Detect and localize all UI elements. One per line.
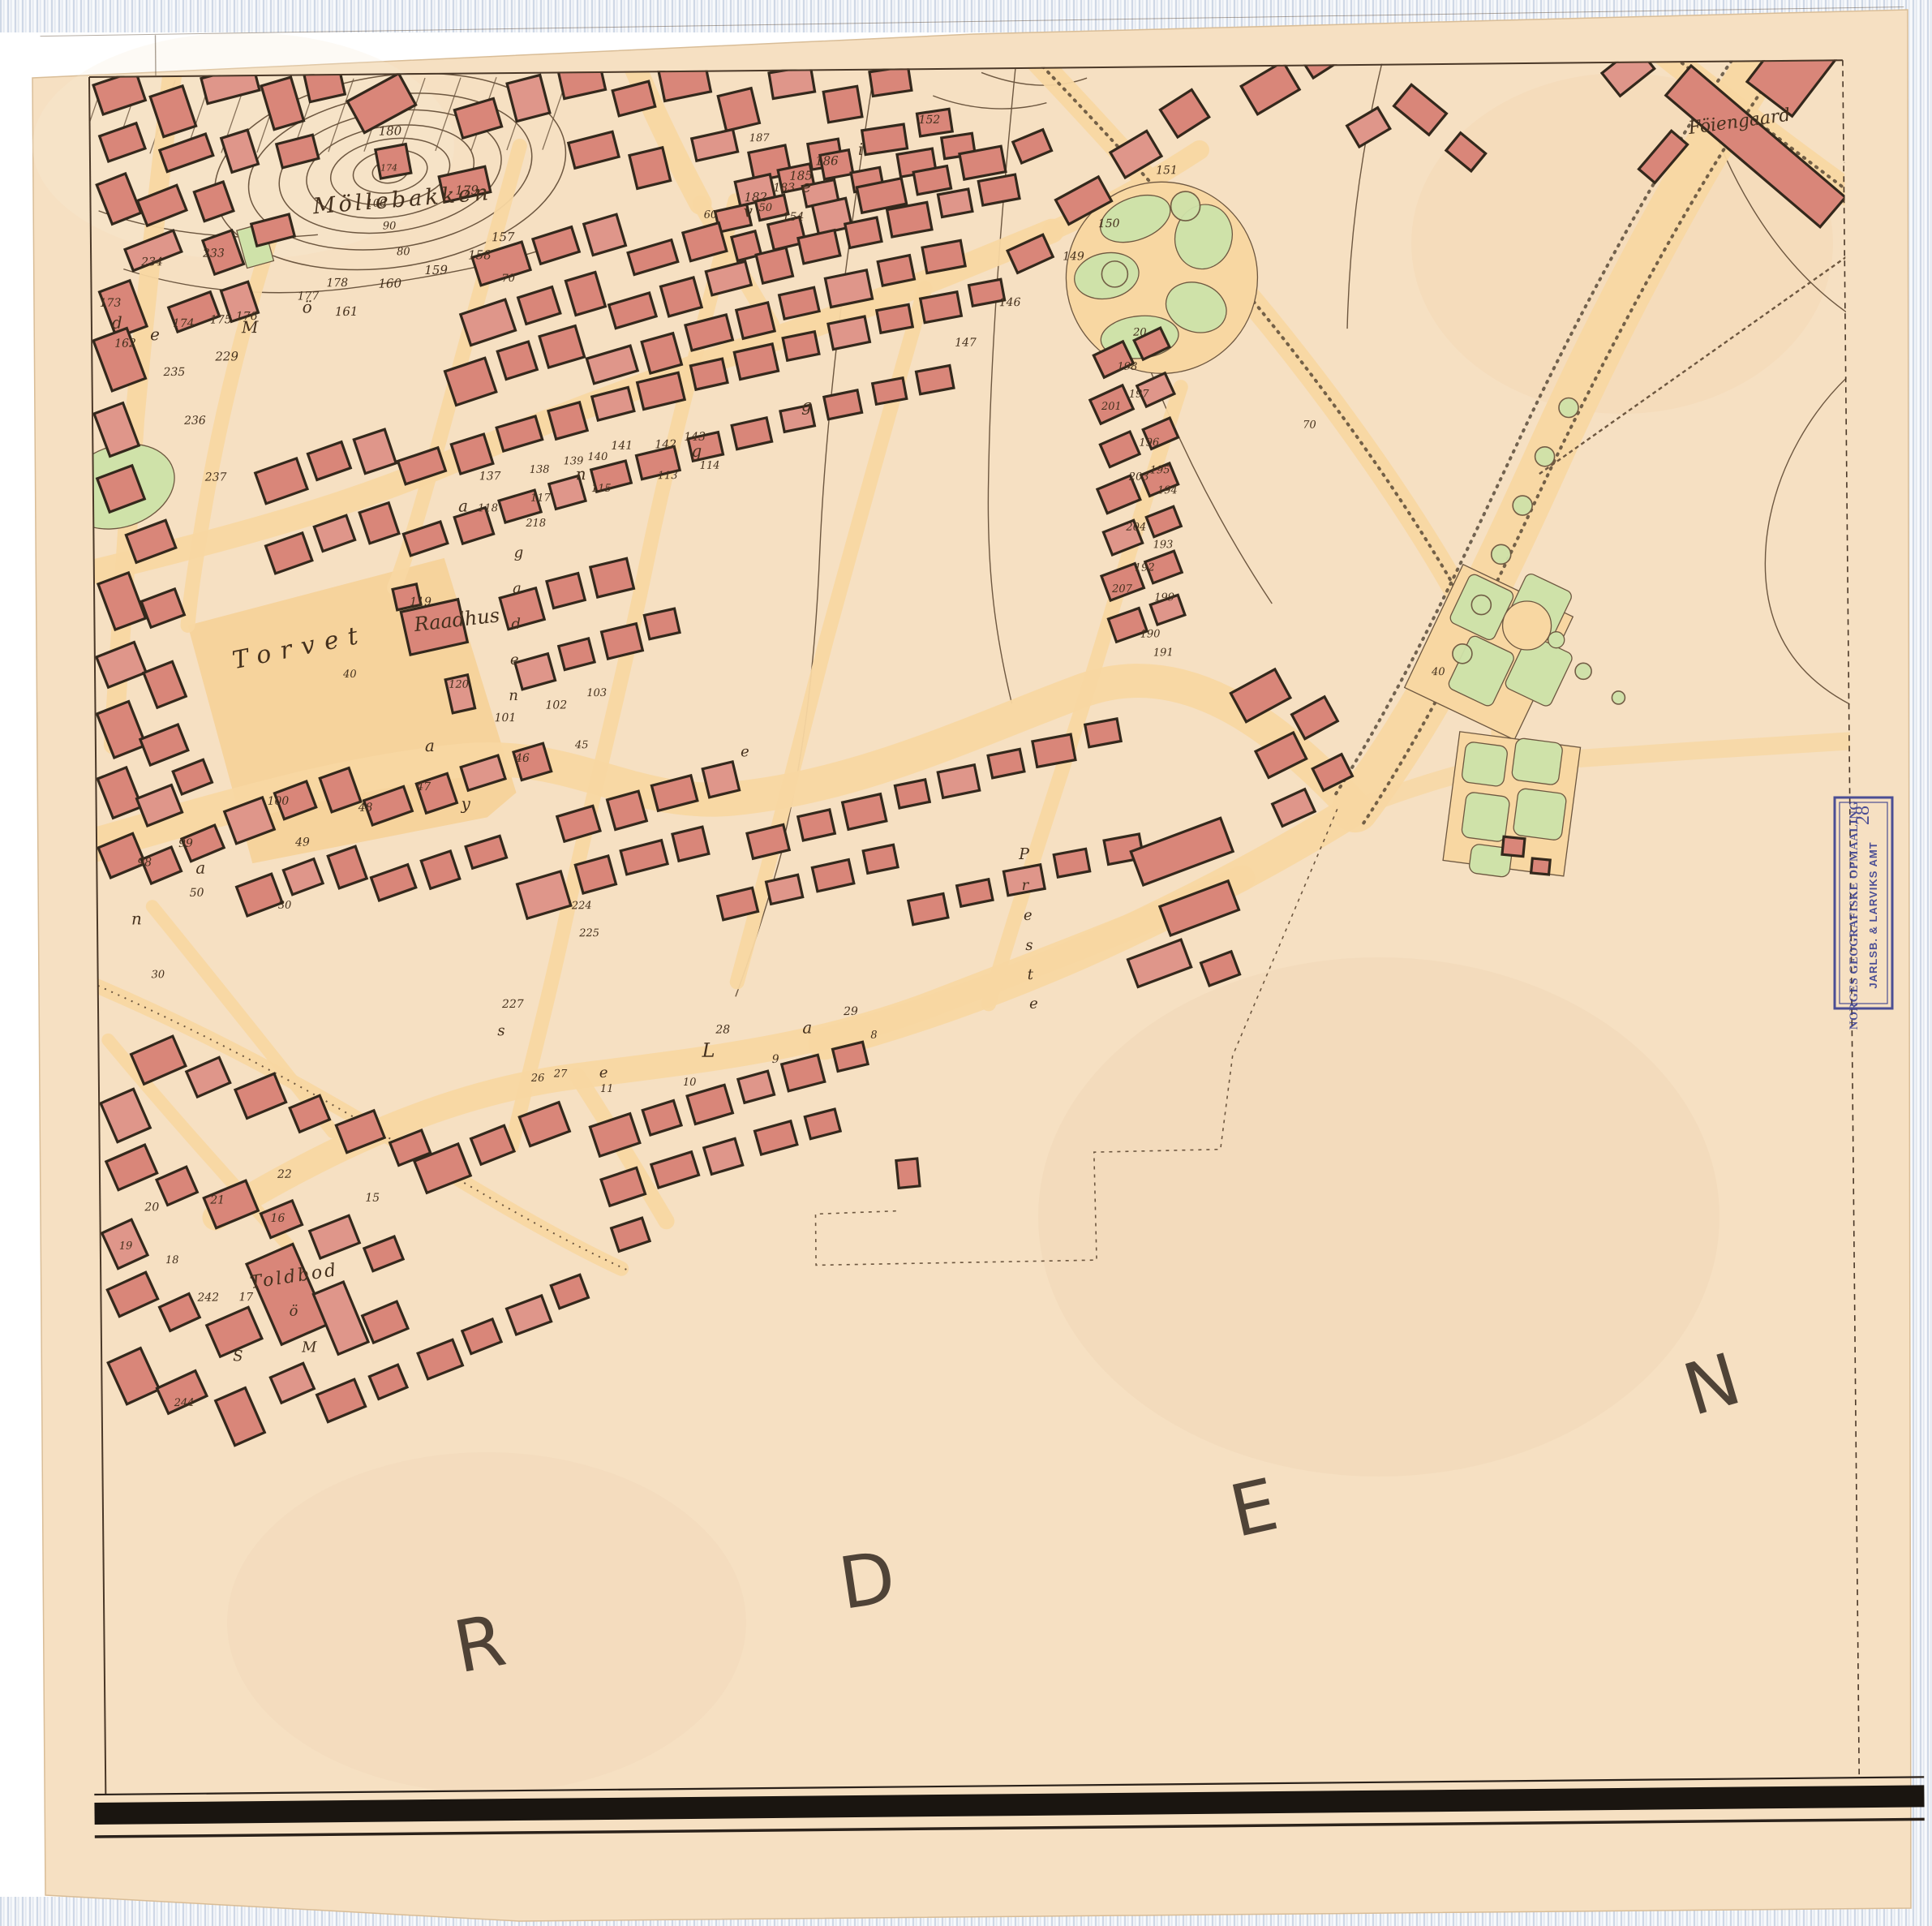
parcel-number: 11 bbox=[600, 1083, 614, 1095]
parcel-number: 244 bbox=[174, 1397, 195, 1409]
park-area bbox=[1513, 788, 1567, 840]
building bbox=[1502, 836, 1525, 856]
parcel-number: 120 bbox=[449, 679, 469, 691]
parcel-number: 158 bbox=[468, 247, 492, 262]
parcel-number: 119 bbox=[410, 595, 431, 608]
parcel-number: 201 bbox=[1101, 401, 1122, 413]
street-letter: n bbox=[576, 464, 586, 484]
building bbox=[783, 332, 819, 360]
park-area bbox=[1461, 742, 1508, 787]
parcel-number: 80 bbox=[397, 246, 410, 258]
street-letter: n bbox=[509, 687, 518, 704]
parcel-number: 49 bbox=[294, 836, 310, 849]
parcel-number: 178 bbox=[326, 277, 348, 290]
street-letter: g bbox=[514, 544, 524, 561]
parcel-number: 175 bbox=[210, 313, 232, 326]
building bbox=[869, 67, 912, 97]
park-area bbox=[1461, 792, 1510, 843]
building bbox=[672, 827, 709, 861]
parcel-number: 16 bbox=[270, 1212, 285, 1225]
parcel-number: 174 bbox=[173, 317, 195, 330]
street-letter: e bbox=[1024, 907, 1033, 924]
building bbox=[938, 765, 979, 798]
parcel-number: 242 bbox=[196, 1292, 219, 1305]
parcel-number: 196 bbox=[1139, 436, 1159, 449]
tree-symbol bbox=[1612, 691, 1625, 704]
street-letter: P bbox=[1018, 845, 1030, 863]
stamp-line2: JARLSB. & LARVIKS AMT bbox=[1867, 841, 1879, 988]
parcel-number: 149 bbox=[1063, 250, 1084, 263]
stain bbox=[1038, 957, 1719, 1477]
parcel-number: 21 bbox=[209, 1193, 225, 1206]
street-letter: n bbox=[131, 909, 142, 928]
parcel-number: 46 bbox=[514, 752, 530, 765]
building bbox=[862, 124, 908, 154]
parcel-number: 18 bbox=[165, 1254, 179, 1266]
parcel-number: 194 bbox=[1157, 484, 1178, 497]
building bbox=[702, 762, 739, 797]
parcel-number: 236 bbox=[183, 415, 206, 428]
parcel-number: 99 bbox=[178, 837, 193, 850]
parcel-number: 199 bbox=[1154, 591, 1174, 604]
parcel-number: 152 bbox=[918, 114, 940, 127]
parcel-number: 160 bbox=[378, 276, 401, 290]
parcel-number: 102 bbox=[545, 699, 567, 712]
building bbox=[823, 86, 862, 122]
parcel-number: 154 bbox=[783, 211, 805, 224]
building bbox=[887, 202, 932, 237]
street-letter: a bbox=[458, 497, 468, 516]
building bbox=[644, 608, 680, 639]
building bbox=[1085, 719, 1121, 747]
building bbox=[896, 1159, 920, 1188]
building bbox=[1054, 849, 1089, 877]
street-letter: a bbox=[802, 1017, 812, 1037]
parcel-number: 47 bbox=[415, 780, 431, 793]
parcel-number: 187 bbox=[749, 132, 771, 144]
building bbox=[957, 879, 993, 906]
parcel-number: 193 bbox=[1153, 539, 1174, 551]
parcel-number: 234 bbox=[140, 256, 163, 269]
parcel-number: 40 bbox=[342, 669, 357, 681]
parcel-number: 190 bbox=[1140, 628, 1161, 640]
building bbox=[938, 189, 972, 217]
tree-symbol bbox=[1453, 644, 1472, 664]
parcel-number: 180 bbox=[379, 123, 402, 138]
parcel-number: 146 bbox=[999, 296, 1021, 309]
parcel-number: 114 bbox=[700, 460, 720, 472]
parcel-number: 113 bbox=[658, 470, 678, 482]
tree-symbol bbox=[1492, 544, 1511, 564]
parcel-number: 179 bbox=[455, 183, 479, 197]
parcel-number: 29 bbox=[843, 1005, 858, 1018]
building bbox=[376, 144, 411, 178]
parcel-number: 30 bbox=[278, 900, 292, 912]
tree-symbol bbox=[1513, 496, 1532, 515]
building bbox=[690, 359, 728, 389]
building bbox=[878, 256, 914, 286]
building bbox=[824, 390, 862, 419]
building bbox=[828, 316, 869, 350]
parcel-number: 235 bbox=[162, 366, 185, 379]
parcel-number: 198 bbox=[1117, 361, 1137, 373]
street-letter: e bbox=[510, 651, 519, 669]
street-letter: ö bbox=[303, 297, 312, 316]
parcel-number: 162 bbox=[114, 337, 136, 350]
parcel-number: 45 bbox=[574, 739, 589, 751]
parcel-number: 15 bbox=[365, 1192, 380, 1205]
street-letter: v bbox=[744, 201, 753, 221]
parcel-number: 20 bbox=[144, 1201, 159, 1214]
parcel-number: 103 bbox=[586, 687, 607, 699]
parcel-number: 192 bbox=[1135, 561, 1155, 574]
building bbox=[718, 88, 759, 131]
building bbox=[988, 749, 1024, 777]
street-letter: e bbox=[1029, 995, 1038, 1012]
parcel-number: 48 bbox=[358, 802, 373, 815]
parcel-number: 101 bbox=[495, 712, 517, 724]
building bbox=[642, 333, 681, 373]
parcel-number: 26 bbox=[530, 1073, 545, 1085]
stamp-sheet-number: 28 bbox=[1853, 806, 1874, 825]
street-letter: L bbox=[701, 1039, 715, 1062]
building bbox=[921, 292, 962, 323]
street-letter: s bbox=[1025, 937, 1033, 954]
street-letter: g bbox=[801, 395, 812, 415]
building bbox=[917, 366, 954, 394]
building bbox=[798, 810, 835, 840]
parcel-number: 19 bbox=[119, 1240, 133, 1253]
street-letter: M bbox=[301, 1339, 317, 1356]
building bbox=[756, 247, 792, 283]
parcel-number: 151 bbox=[1156, 164, 1178, 177]
parcel-number: 204 bbox=[1125, 522, 1146, 534]
parcel-number: 8 bbox=[870, 1030, 877, 1042]
building bbox=[629, 148, 671, 189]
street-letter: e bbox=[801, 176, 811, 196]
tree-symbol bbox=[1170, 191, 1200, 221]
parcel-number: 159 bbox=[424, 263, 448, 277]
parcel-number: 197 bbox=[1129, 388, 1150, 400]
parcel-number: 229 bbox=[214, 349, 238, 363]
park-area bbox=[1511, 737, 1563, 785]
parcel-number: 100 bbox=[268, 795, 290, 808]
street-letter: t bbox=[1028, 966, 1034, 983]
parcel-number: 224 bbox=[571, 900, 592, 912]
tree-symbol bbox=[1535, 447, 1554, 466]
street-letter: S bbox=[233, 1348, 243, 1365]
parcel-number: 195 bbox=[1150, 464, 1170, 476]
parcel-number: 90 bbox=[383, 220, 397, 232]
building bbox=[1531, 858, 1551, 875]
parcel-number: 237 bbox=[204, 471, 227, 484]
building bbox=[863, 845, 898, 873]
building bbox=[922, 240, 965, 273]
parcel-number: 186 bbox=[815, 153, 839, 168]
street-letter: e bbox=[150, 325, 160, 344]
parcel-number: 147 bbox=[955, 337, 977, 350]
street-letter: a bbox=[513, 580, 522, 597]
parcel-number: 183 bbox=[773, 182, 795, 195]
parcel-number: 173 bbox=[100, 297, 122, 310]
scanned-map-page: MöllebakkenTorvetRaadhusToldbodFöiengaar… bbox=[0, 0, 1932, 1926]
park-area bbox=[1502, 601, 1552, 651]
street-letter: d bbox=[112, 313, 122, 333]
parcel-number: 137 bbox=[479, 470, 501, 483]
parcel-number: 17 bbox=[238, 1291, 253, 1304]
street-letter: e bbox=[741, 743, 749, 760]
parcel-number: 150 bbox=[1098, 217, 1120, 230]
street-letter: g bbox=[691, 441, 702, 461]
parcel-number: 138 bbox=[530, 464, 550, 476]
parcel-number: 98 bbox=[137, 856, 152, 869]
building bbox=[736, 303, 775, 338]
parcel-number: 22 bbox=[277, 1168, 292, 1181]
parcel-number: 203 bbox=[1128, 471, 1149, 483]
parcel-number: 174 bbox=[380, 162, 397, 173]
parcel-number: 218 bbox=[525, 518, 546, 530]
street-letter: i bbox=[858, 140, 864, 159]
street-letter: s bbox=[497, 1022, 504, 1039]
parcel-number: 9 bbox=[772, 1053, 779, 1066]
parcel-number: 60 bbox=[704, 209, 718, 221]
park-area bbox=[1548, 632, 1565, 648]
street-letter: d bbox=[511, 616, 521, 633]
parcel-number: 70 bbox=[1303, 419, 1316, 431]
building bbox=[908, 894, 948, 925]
parcel-number: 191 bbox=[1153, 647, 1174, 659]
street-letter: a bbox=[425, 736, 435, 755]
building bbox=[895, 780, 930, 808]
building bbox=[913, 166, 951, 195]
building bbox=[608, 791, 647, 829]
parcel-number: 227 bbox=[501, 998, 524, 1011]
parcel-number: 117 bbox=[530, 492, 552, 505]
tree-symbol bbox=[1559, 398, 1578, 417]
parcel-number: 100 bbox=[366, 197, 386, 209]
parcel-number: 20 bbox=[1132, 327, 1147, 339]
parcel-number: 161 bbox=[335, 304, 358, 319]
building bbox=[873, 378, 907, 405]
parcel-number: 70 bbox=[501, 273, 515, 285]
tree-symbol bbox=[1471, 595, 1491, 614]
street-letter: M bbox=[241, 317, 259, 337]
parcel-number: 118 bbox=[478, 502, 498, 514]
parcel-number: 233 bbox=[202, 247, 225, 260]
parcel-number: 28 bbox=[715, 1023, 730, 1036]
parcel-number: 207 bbox=[1111, 583, 1133, 595]
street-letter: a bbox=[195, 858, 205, 878]
street-letter: y bbox=[461, 794, 471, 814]
parcel-number: 30 bbox=[152, 969, 165, 981]
building bbox=[845, 217, 882, 247]
tree-symbol bbox=[1101, 261, 1127, 287]
building bbox=[877, 304, 912, 333]
parcel-number: 225 bbox=[578, 927, 599, 939]
parcel-number: 10 bbox=[683, 1077, 697, 1089]
parcel-number: 157 bbox=[492, 230, 515, 244]
parcel-number: 140 bbox=[587, 451, 608, 463]
building bbox=[978, 174, 1020, 205]
parcel-number: 141 bbox=[611, 440, 633, 453]
parcel-number: 115 bbox=[591, 483, 612, 495]
stamp-line1: NORGES GEOGRAFISKE OPMAALING bbox=[1848, 801, 1861, 1030]
street-letter: ö bbox=[290, 1303, 298, 1320]
parcel-number: 142 bbox=[655, 438, 676, 451]
parcel-number: 27 bbox=[553, 1068, 568, 1080]
tree-symbol bbox=[1575, 663, 1591, 679]
parcel-number: 40 bbox=[1431, 666, 1445, 678]
historic-town-map: MöllebakkenTorvetRaadhusToldbodFöiengaar… bbox=[0, 0, 1932, 1926]
parcel-number: 50 bbox=[190, 887, 204, 900]
building bbox=[1033, 734, 1075, 767]
street-letter: e bbox=[599, 1064, 608, 1081]
